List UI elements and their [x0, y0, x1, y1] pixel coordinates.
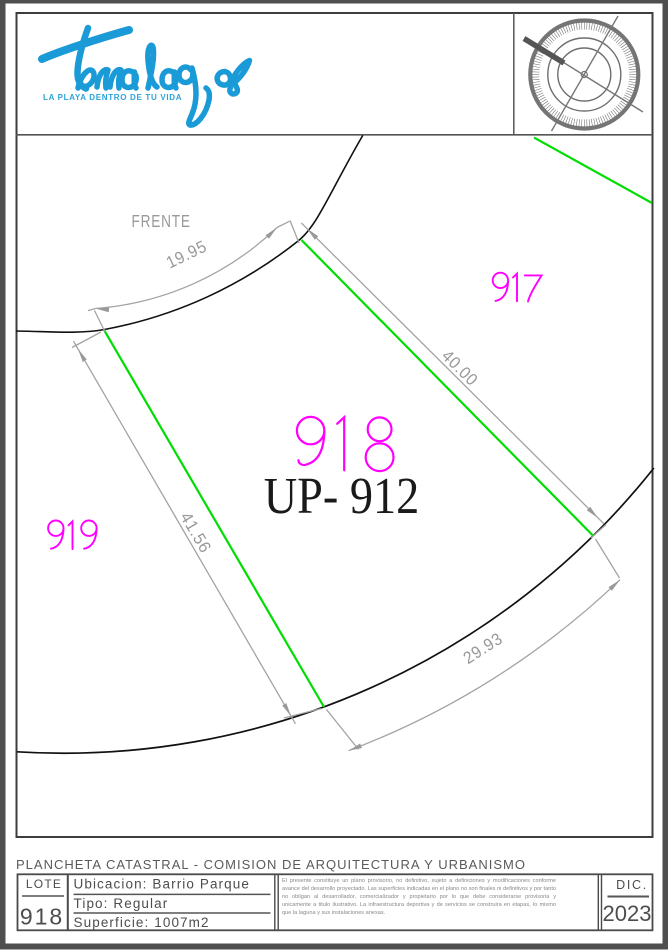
svg-text:LOTE: LOTE	[26, 877, 62, 891]
svg-text:DIC.: DIC.	[616, 878, 648, 892]
svg-text:Tipo: Regular: Tipo: Regular	[74, 896, 169, 911]
svg-text:Superficie: 1007m2: Superficie: 1007m2	[74, 915, 210, 930]
svg-text:2023: 2023	[603, 901, 652, 926]
svg-text:Ubicacion: Barrio Parque: Ubicacion: Barrio Parque	[74, 877, 250, 892]
svg-text:918: 918	[20, 904, 64, 930]
